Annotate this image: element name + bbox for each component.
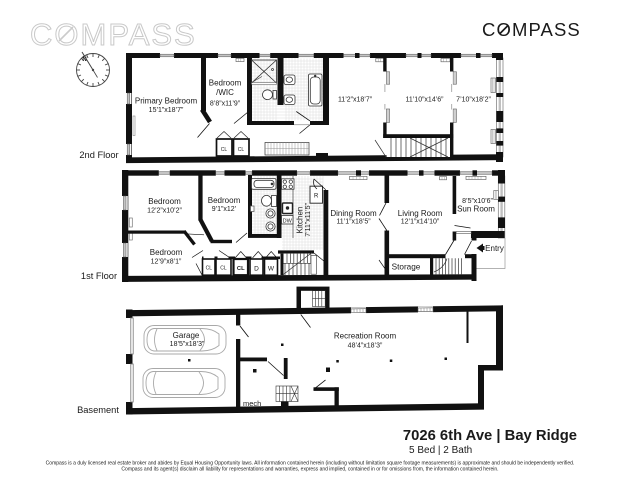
svg-text:Bedroom: Bedroom	[208, 196, 241, 205]
svg-text:15’1”x18’7”: 15’1”x18’7”	[149, 107, 184, 114]
svg-text:11’2”x18’7”: 11’2”x18’7”	[338, 97, 373, 104]
svg-text:Primary Bedroom: Primary Bedroom	[135, 97, 198, 106]
svg-text:Garage: Garage	[173, 331, 200, 340]
svg-text:CL: CL	[238, 147, 245, 153]
svg-text:Compass and its agent(s) discl: Compass and its agent(s) disclaim all li…	[121, 467, 498, 473]
svg-text:12’2”x10’2”: 12’2”x10’2”	[147, 208, 182, 215]
svg-text:CL: CL	[206, 266, 213, 272]
svg-text:11’10”x14’6”: 11’10”x14’6”	[405, 97, 444, 104]
svg-text:Dining Room: Dining Room	[330, 209, 377, 218]
svg-text:/WIC: /WIC	[216, 88, 234, 97]
svg-text:COMPASS: COMPASS	[482, 19, 581, 40]
svg-text:Bedroom: Bedroom	[150, 248, 183, 257]
svg-text:Living Room: Living Room	[398, 209, 443, 218]
svg-text:2nd Floor: 2nd Floor	[79, 150, 118, 160]
svg-text:D: D	[254, 266, 259, 273]
svg-text:N: N	[82, 57, 86, 63]
svg-text:7’10”x18’2”: 7’10”x18’2”	[456, 97, 491, 104]
svg-text:DW: DW	[283, 218, 293, 224]
svg-text:1st Floor: 1st Floor	[81, 271, 117, 281]
svg-text:7026 6th Ave | Bay Ridge: 7026 6th Ave | Bay Ridge	[403, 428, 577, 444]
svg-text:11’1”x18’5”: 11’1”x18’5”	[336, 219, 371, 226]
svg-text:mech: mech	[243, 399, 261, 408]
svg-text:Bedroom: Bedroom	[148, 197, 181, 206]
svg-text:Entry: Entry	[485, 244, 504, 253]
svg-text:5 Bed | 2 Bath: 5 Bed | 2 Bath	[409, 445, 472, 456]
svg-text:8’8”x11’9”: 8’8”x11’9”	[210, 100, 241, 107]
svg-text:COMPASS: COMPASS	[30, 17, 197, 52]
svg-text:Sun Room: Sun Room	[457, 205, 495, 214]
svg-text:18’5”x18’3”: 18’5”x18’3”	[170, 341, 205, 348]
svg-text:Basement: Basement	[77, 405, 119, 415]
svg-text:Recreation Room: Recreation Room	[334, 332, 397, 341]
svg-text:CL: CL	[237, 266, 245, 272]
svg-text:Bedroom: Bedroom	[209, 79, 242, 88]
svg-text:R: R	[314, 194, 319, 200]
svg-text:48’4”x18’3”: 48’4”x18’3”	[348, 343, 383, 350]
svg-text:CL: CL	[221, 147, 228, 153]
svg-text:9’1”x12’: 9’1”x12’	[212, 206, 237, 213]
svg-text:7’11”x11’5”: 7’11”x11’5”	[305, 203, 312, 237]
svg-text:Kitchen: Kitchen	[296, 207, 305, 234]
svg-text:CL: CL	[220, 266, 227, 272]
svg-text:12’1”x14’10”: 12’1”x14’10”	[401, 219, 440, 226]
svg-text:12’9”x8’1”: 12’9”x8’1”	[151, 259, 182, 266]
svg-text:W: W	[268, 266, 275, 273]
svg-text:Storage: Storage	[392, 262, 421, 271]
